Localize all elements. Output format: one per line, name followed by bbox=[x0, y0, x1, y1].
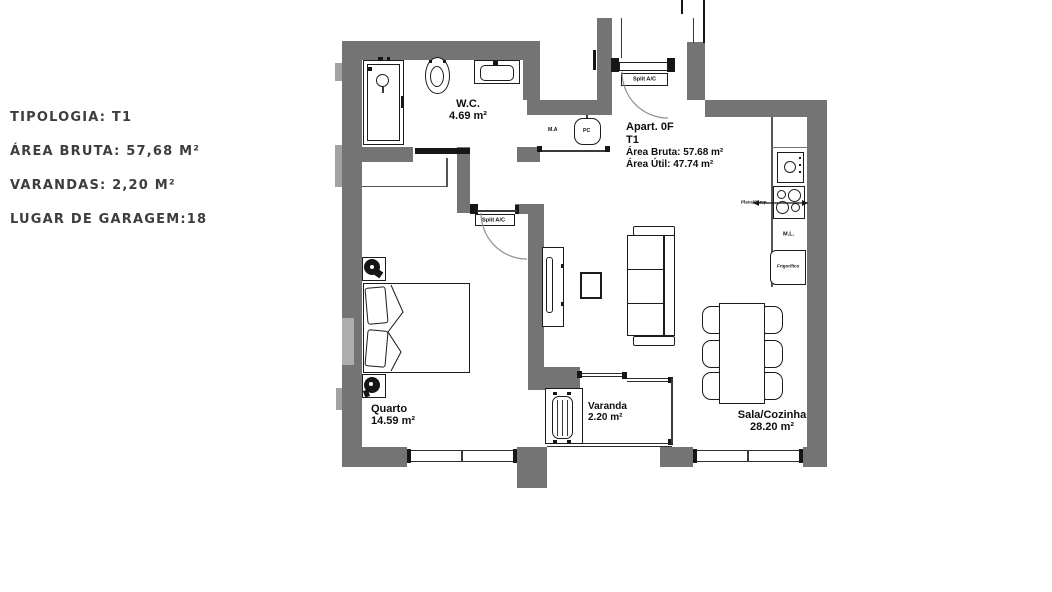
entry-door-arc bbox=[622, 72, 668, 118]
bedroom-door-arc bbox=[481, 213, 527, 259]
floorplan-page: TIPOLOGIA: T1 ÁREA BRUTA: 57,68 M² VARAN… bbox=[0, 0, 1052, 592]
bed-blanket-fold bbox=[388, 285, 403, 371]
plan-overlay bbox=[0, 0, 1052, 592]
hood-vent-arrow bbox=[802, 200, 808, 206]
hood-vent-arrow bbox=[753, 200, 759, 206]
